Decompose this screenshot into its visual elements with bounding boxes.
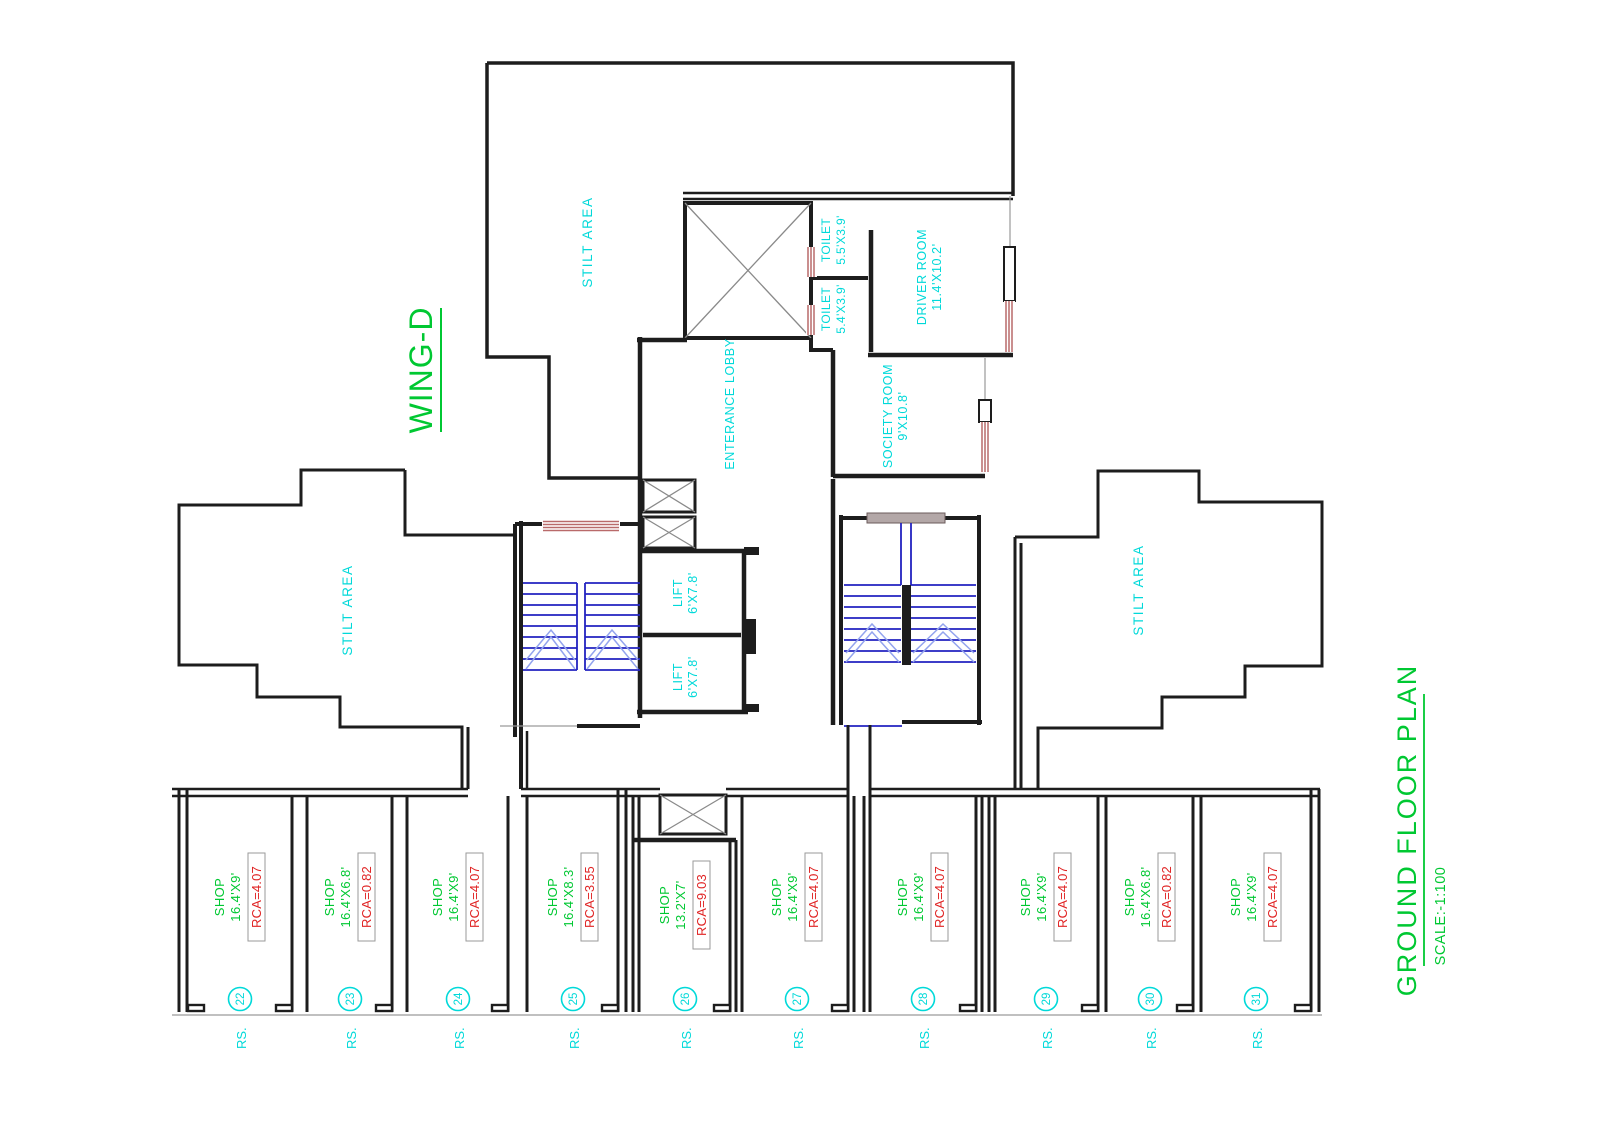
small-duct-shafts: [643, 480, 695, 548]
shop-29: SHOP 16.4'X9' RCA=4.07 29 RS.: [1018, 853, 1071, 1049]
svg-text:29: 29: [1041, 993, 1053, 1006]
svg-text:ENTERANCE LOBBY: ENTERANCE LOBBY: [723, 338, 737, 469]
svg-text:30: 30: [1145, 993, 1157, 1006]
svg-text:STILT AREA: STILT AREA: [580, 196, 595, 287]
door-hatch: [543, 522, 619, 531]
svg-text:SHOP: SHOP: [322, 878, 337, 916]
left-staircase: [500, 521, 640, 789]
svg-text:16.4'X9': 16.4'X9': [911, 872, 926, 921]
svg-text:RCA=4.07: RCA=4.07: [467, 866, 482, 928]
wall-stub: [746, 619, 756, 654]
right-staircase: [841, 513, 982, 726]
svg-text:DRIVER ROOM: DRIVER ROOM: [915, 229, 929, 325]
svg-text:RCA=4.07: RCA=4.07: [1055, 866, 1070, 928]
shaft-x-icon: [643, 517, 695, 548]
svg-text:22: 22: [235, 993, 247, 1006]
svg-text:16.4'X6.8': 16.4'X6.8': [1138, 866, 1153, 927]
svg-text:RCA=4.07: RCA=4.07: [1265, 866, 1280, 928]
label-stilt-left: STILT AREA: [340, 564, 355, 655]
svg-text:STILT AREA: STILT AREA: [340, 564, 355, 655]
shaft-x-icon: [660, 795, 726, 834]
svg-text:GROUND FLOOR PLAN: GROUND FLOOR PLAN: [1392, 664, 1422, 997]
shop-30: SHOP 16.4'X6.8' RCA=0.82 30 RS.: [1122, 853, 1175, 1049]
svg-text:RS.: RS.: [791, 1027, 806, 1049]
shop-31: SHOP 16.4'X9' RCA=4.07 31 RS.: [1228, 853, 1281, 1049]
svg-text:28: 28: [918, 993, 930, 1006]
svg-text:11.4'X10.2': 11.4'X10.2': [930, 243, 944, 310]
svg-text:RS.: RS.: [344, 1027, 359, 1049]
shop-27: SHOP 16.4'X9' RCA=4.07 27 RS.: [769, 853, 822, 1049]
svg-text:SHOP: SHOP: [545, 878, 560, 916]
wall-path: [487, 63, 640, 478]
svg-text:24: 24: [453, 992, 465, 1005]
svg-text:TOILET: TOILET: [819, 218, 833, 262]
svg-text:LIFT: LIFT: [671, 663, 685, 691]
svg-text:SHOP: SHOP: [430, 878, 445, 916]
label-society-room: SOCIETY ROOM 9'X10.8': [881, 364, 910, 468]
wall-path: [179, 470, 462, 789]
label-entrance-lobby: ENTERANCE LOBBY: [723, 338, 737, 469]
door-frame: [979, 400, 991, 422]
svg-text:SHOP: SHOP: [1228, 878, 1243, 916]
label-toilet-upper: TOILET 5.5'X3.9': [819, 215, 848, 265]
svg-text:16.4'X9': 16.4'X9': [1034, 872, 1049, 921]
svg-text:SHOP: SHOP: [769, 878, 784, 916]
svg-text:SHOP: SHOP: [895, 878, 910, 916]
plan-title: GROUND FLOOR PLAN: [1392, 664, 1424, 997]
svg-text:RS.: RS.: [234, 1027, 249, 1049]
svg-text:16.4'X9': 16.4'X9': [785, 872, 800, 921]
svg-text:RS.: RS.: [1040, 1027, 1055, 1049]
svg-text:9'X10.8': 9'X10.8': [896, 391, 910, 440]
svg-text:LIFT: LIFT: [671, 579, 685, 607]
plan-scale: SCALE:-1:100: [1433, 867, 1449, 966]
svg-text:RCA=4.07: RCA=4.07: [806, 866, 821, 928]
svg-text:SHOP: SHOP: [212, 878, 227, 916]
svg-text:WING-D: WING-D: [403, 307, 439, 434]
floor-plan-canvas: STILT AREA STILT AREA STILT AREA ENTERAN…: [0, 0, 1600, 1130]
svg-text:13.2'X7': 13.2'X7': [673, 880, 688, 929]
svg-text:SHOP: SHOP: [1122, 878, 1137, 916]
stair-divider-wall: [902, 585, 911, 665]
wall-path: [1015, 471, 1322, 789]
svg-text:RS.: RS.: [567, 1027, 582, 1049]
stair-landing: [867, 513, 945, 523]
label-lift-lower: LIFT 6'X7.8': [671, 656, 700, 698]
svg-text:31: 31: [1251, 993, 1263, 1006]
label-stilt-top: STILT AREA: [580, 196, 595, 287]
svg-text:RCA=0.82: RCA=0.82: [1159, 866, 1174, 928]
svg-text:RS.: RS.: [1144, 1027, 1159, 1049]
svg-text:25: 25: [568, 993, 580, 1006]
stair-treads: [523, 583, 577, 670]
svg-text:SOCIETY ROOM: SOCIETY ROOM: [881, 364, 895, 468]
label-toilet-lower: TOILET 5.4'X3.9': [819, 284, 848, 334]
large-duct-shaft: [685, 203, 811, 338]
shop-26: SHOP 13.2'X7' RCA=9.03 26 RS.: [657, 861, 710, 1049]
shaft-x-icon: [685, 203, 811, 338]
label-lift-upper: LIFT 6'X7.8': [671, 572, 700, 614]
svg-text:5.4'X3.9': 5.4'X3.9': [834, 284, 848, 334]
svg-text:26: 26: [680, 993, 692, 1006]
wall-stub: [744, 704, 759, 712]
svg-text:STILT AREA: STILT AREA: [1131, 544, 1146, 635]
shop-25: SHOP 16.4'X8.3' RCA=3.55 25 RS.: [545, 853, 598, 1049]
svg-text:RS.: RS.: [1250, 1027, 1265, 1049]
svg-text:16.4'X9': 16.4'X9': [446, 872, 461, 921]
right-stilt-outline: [1015, 471, 1322, 789]
wall-path: [811, 338, 833, 350]
wall-path: [405, 470, 515, 789]
svg-text:RS.: RS.: [452, 1027, 467, 1049]
svg-text:SHOP: SHOP: [1018, 878, 1033, 916]
svg-text:SCALE:-1:100: SCALE:-1:100: [1433, 867, 1449, 966]
stair-divider: [901, 523, 911, 585]
wall-stub: [744, 547, 759, 555]
ground-floor-plan-drawing: STILT AREA STILT AREA STILT AREA ENTERAN…: [0, 0, 1600, 1130]
svg-text:6'X7.8': 6'X7.8': [686, 656, 700, 698]
shop-22: SHOP 16.4'X9' RCA=4.07 22 RS.: [212, 853, 265, 1049]
shaft-x-icon: [643, 480, 695, 512]
shop-23: SHOP 16.4'X6.8' RCA=0.82 23 RS.: [322, 853, 375, 1049]
label-stilt-right: STILT AREA: [1131, 544, 1146, 635]
stair-direction-arrow-icon: [526, 630, 638, 669]
svg-text:TOILET: TOILET: [819, 287, 833, 331]
wall-path: [487, 63, 1013, 196]
stair-treads: [585, 583, 640, 670]
shop-24: SHOP 16.4'X9' RCA=4.07 24 RS.: [430, 853, 483, 1049]
svg-text:27: 27: [792, 993, 804, 1006]
window-frame: [1004, 247, 1015, 301]
svg-text:23: 23: [345, 993, 357, 1006]
svg-text:16.4'X9': 16.4'X9': [228, 872, 243, 921]
svg-text:RS.: RS.: [679, 1027, 694, 1049]
svg-text:RCA=4.07: RCA=4.07: [932, 866, 947, 928]
svg-text:RCA=0.82: RCA=0.82: [359, 866, 374, 928]
svg-text:RCA=9.03: RCA=9.03: [694, 874, 709, 936]
shop-28: SHOP 16.4'X9' RCA=4.07 28 RS.: [895, 853, 948, 1049]
svg-text:5.5'X3.9': 5.5'X3.9': [834, 215, 848, 265]
stair-divider: [577, 583, 585, 670]
svg-text:RCA=3.55: RCA=3.55: [582, 866, 597, 928]
svg-text:RCA=4.07: RCA=4.07: [249, 866, 264, 928]
svg-text:16.4'X9': 16.4'X9': [1244, 872, 1259, 921]
svg-text:16.4'X6.8': 16.4'X6.8': [338, 866, 353, 927]
wall-path: [683, 193, 1013, 199]
svg-text:16.4'X8.3': 16.4'X8.3': [561, 866, 576, 927]
svg-text:SHOP: SHOP: [657, 886, 672, 924]
shops-top-wall: [172, 789, 1320, 796]
label-driver-room: DRIVER ROOM 11.4'X10.2': [915, 229, 944, 325]
svg-text:RS.: RS.: [917, 1027, 932, 1049]
svg-text:6'X7.8': 6'X7.8': [686, 572, 700, 614]
wall-path: [1015, 537, 1021, 789]
wing-title: WING-D: [403, 307, 441, 434]
